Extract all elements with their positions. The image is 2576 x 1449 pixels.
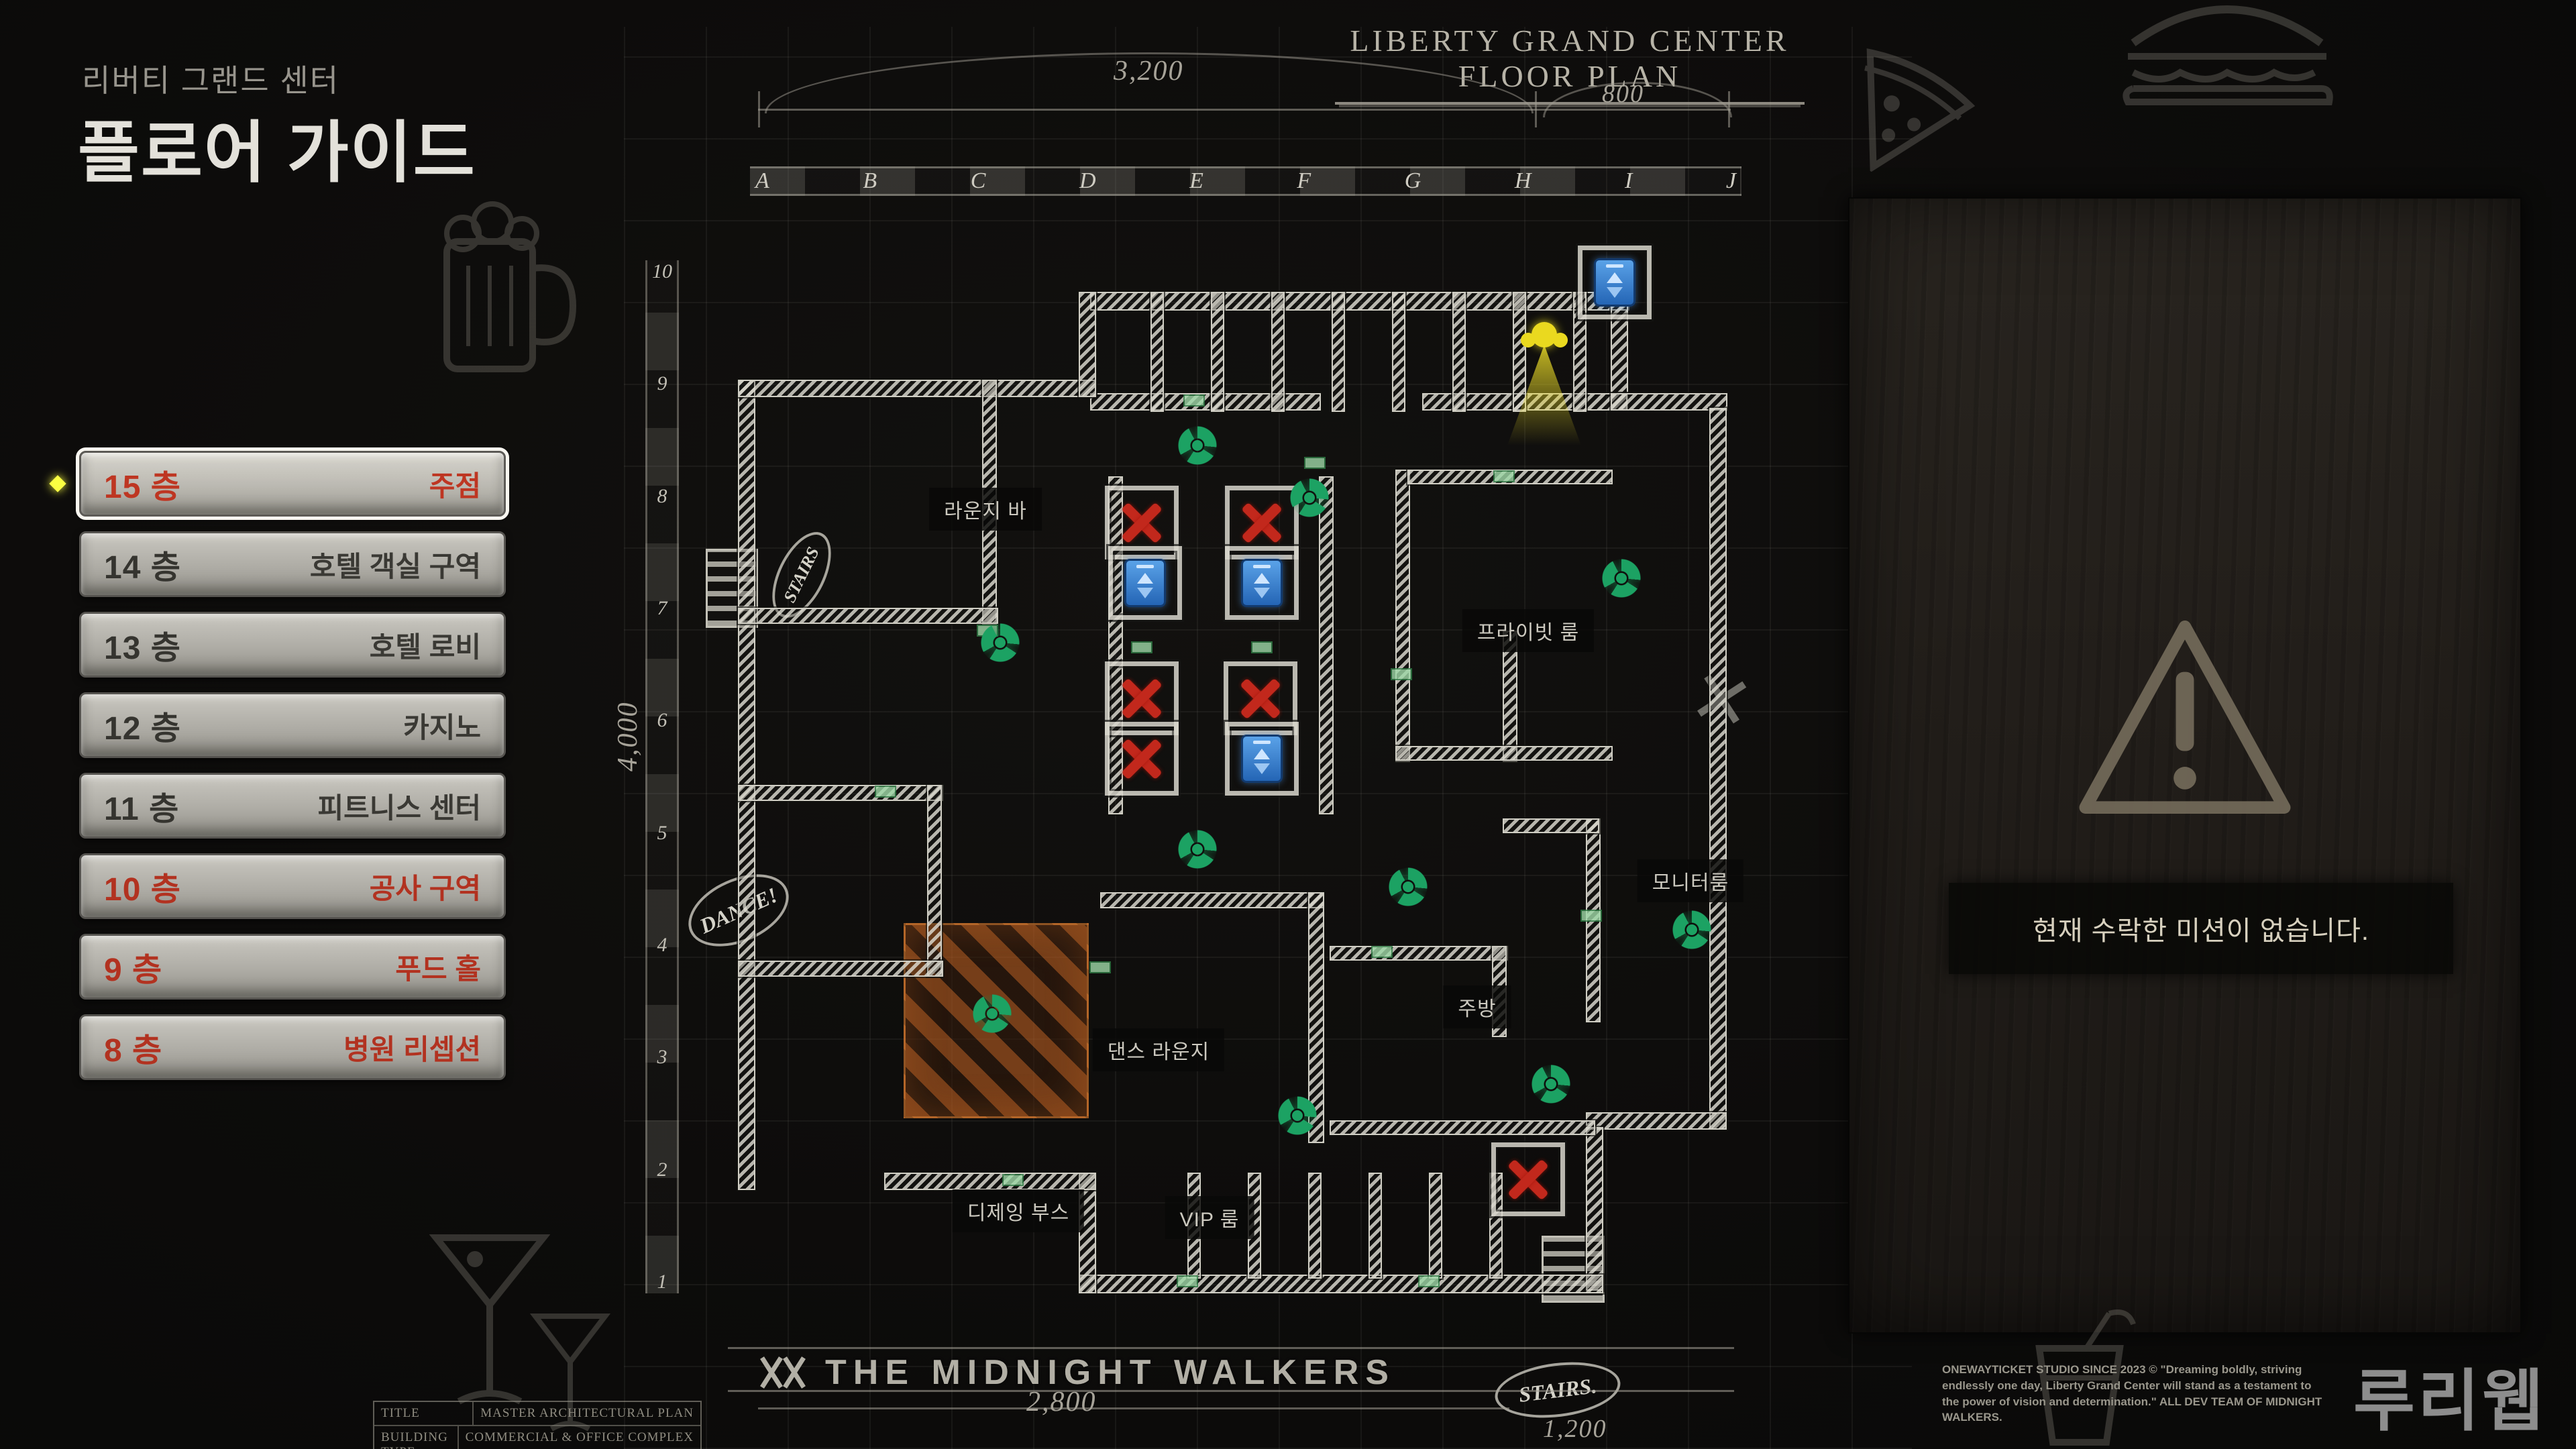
objective-dot <box>1304 492 1315 503</box>
mission-empty-banner: 현재 수락한 미션이 없습니다. <box>1949 883 2453 974</box>
elevator-icon[interactable] <box>1241 559 1283 607</box>
elevator-down-arrow-icon <box>1254 588 1270 598</box>
grid-column-label: A <box>755 168 769 194</box>
floor-label: 호텔 로비 <box>370 625 481 665</box>
grid-column-label: J <box>1726 168 1736 194</box>
wall-segment <box>1503 818 1599 833</box>
wall-segment <box>1332 292 1345 412</box>
wall-segment <box>1150 292 1164 412</box>
floor-number: 15 층 <box>104 460 181 507</box>
wall-segment <box>1090 393 1321 411</box>
studio-logo: THE MIDNIGHT WALKERS <box>758 1352 1395 1393</box>
player-marker-icon <box>1507 322 1581 445</box>
wall-segment <box>1452 292 1466 412</box>
wall-segment <box>738 608 998 624</box>
door-marker-icon <box>1493 470 1515 482</box>
room-label: 모니터룸 <box>1638 859 1743 902</box>
objective-point-icon <box>1672 910 1712 950</box>
site-watermark: 루리웹 <box>2353 1346 2546 1444</box>
objective-point-icon <box>1601 558 1642 598</box>
grid-row-label: 9 <box>657 372 667 395</box>
grid-column-ruler: ABCDEFGHIJ <box>750 166 1741 196</box>
wall-segment <box>738 961 943 977</box>
studio-logo-text: THE MIDNIGHT WALKERS <box>825 1352 1395 1393</box>
floor-selector-list: 15 층 주점 14 층 호텔 객실 구역 13 층 호텔 로비 12 층 카지… <box>79 451 506 1080</box>
wall-segment <box>1392 292 1405 412</box>
objective-point-icon <box>1289 478 1330 518</box>
dimension-top-value: 3,200 <box>1114 55 1184 87</box>
objective-point-icon <box>972 994 1012 1034</box>
blocked-elevator-x-icon <box>1119 736 1165 782</box>
door-marker-icon <box>1002 1174 1024 1186</box>
grid-row-label: 4 <box>657 934 667 957</box>
player-flashlight-cone <box>1507 345 1581 445</box>
dimension-line-bottom <box>758 1407 1509 1409</box>
objective-point-icon <box>1177 425 1218 466</box>
door-marker-icon <box>1177 1275 1198 1287</box>
grid-column-label: F <box>1297 168 1311 194</box>
objective-dot <box>1192 844 1203 855</box>
elevator-shaft <box>1225 546 1299 620</box>
wall-segment <box>1368 1173 1382 1279</box>
grid-row-label: 7 <box>657 597 667 620</box>
wall-segment <box>1395 470 1410 762</box>
grid-row-label: 5 <box>657 822 667 845</box>
door-marker-icon <box>1131 641 1152 653</box>
floor-label: 호텔 객실 구역 <box>310 544 481 585</box>
door-marker-icon <box>1304 457 1326 469</box>
wall-segment <box>1586 1112 1727 1130</box>
wall-segment <box>927 785 942 977</box>
floor-button[interactable]: 9 층 푸드 홀 <box>79 934 506 1000</box>
elevator-shaft <box>1105 722 1179 796</box>
floor-label: 주점 <box>429 464 481 504</box>
objective-dot <box>1192 440 1203 451</box>
game-screen: 리버티 그랜드 센터 플로어 가이드 LIBERTY GRAND CENTER … <box>0 0 2576 1449</box>
wall-segment <box>1709 408 1727 1130</box>
mission-panel: 현재 수락한 미션이 없습니다. <box>1848 197 2522 1334</box>
wall-segment <box>1395 746 1613 761</box>
floor-number: 8 층 <box>104 1024 162 1071</box>
grid-column-label: C <box>971 168 986 194</box>
objective-dot <box>1686 924 1697 935</box>
door-marker-icon <box>1251 641 1273 653</box>
objective-dot <box>1616 573 1627 584</box>
door-marker-icon <box>1183 394 1205 407</box>
wall-segment <box>1090 292 1629 311</box>
burger-doodle-icon <box>2093 0 2361 110</box>
blocked-elevator-x-icon <box>1239 500 1285 545</box>
elevator-icon[interactable] <box>1594 258 1635 307</box>
room-label: 주방 <box>1443 985 1511 1028</box>
blocked-elevator-x-icon <box>1505 1157 1551 1202</box>
floor-label: 병원 리셉션 <box>343 1027 481 1068</box>
elevator-down-arrow-icon <box>1137 588 1153 598</box>
dimension-left-value: 4,000 <box>612 702 644 772</box>
floor-number: 14 층 <box>104 541 181 588</box>
elevator-up-arrow-icon <box>1254 573 1270 584</box>
floor-button[interactable]: 11 층 피트니스 센터 <box>79 773 506 839</box>
objective-point-icon <box>1177 829 1218 869</box>
tropical-drink-doodle-icon <box>2012 1308 2147 1449</box>
player-body <box>1532 322 1557 347</box>
elevator-shaft <box>1108 546 1182 620</box>
objective-point-icon <box>1388 867 1428 907</box>
grid-column-label: D <box>1079 168 1096 194</box>
floor-button[interactable]: 14 층 호텔 객실 구역 <box>79 531 506 597</box>
objective-point-icon <box>1531 1064 1571 1104</box>
wall-segment <box>1079 292 1096 397</box>
wall-segment <box>1330 946 1508 961</box>
elevator-down-arrow-icon <box>1607 287 1623 298</box>
door-marker-icon <box>875 786 896 798</box>
floor-label: 카지노 <box>403 705 481 746</box>
wall-segment <box>1429 1173 1442 1279</box>
elevator-icon[interactable] <box>1124 559 1166 607</box>
door-marker-icon <box>1418 1275 1440 1287</box>
objective-point-icon <box>980 623 1020 663</box>
elevator-dash <box>1136 565 1154 568</box>
floor-button[interactable]: 10 층 공사 구역 <box>79 853 506 919</box>
grid-row-label: 8 <box>657 485 667 508</box>
door-marker-icon <box>1371 946 1393 958</box>
selection-cursor-icon <box>49 475 66 492</box>
wall-segment <box>1308 1173 1322 1279</box>
floor-number: 12 층 <box>104 702 181 749</box>
floor-button[interactable]: 13 층 호텔 로비 <box>79 612 506 678</box>
title-block-key: BUILDING TYPE <box>374 1426 459 1449</box>
wall-segment <box>1330 1120 1595 1135</box>
floor-label: 푸드 홀 <box>395 947 481 987</box>
floor-plan-map: DANCE! STAIRS STAIRS. ✕ 라운지 바프라이빗 룸모니터룸주… <box>724 255 1758 1449</box>
room-label: 프라이빗 룸 <box>1462 609 1594 652</box>
elevator-shaft <box>1578 246 1652 319</box>
elevator-up-arrow-icon <box>1254 749 1270 759</box>
wall-segment <box>1079 1275 1603 1293</box>
grid-column-label: I <box>1625 168 1632 194</box>
double-x-logo-icon <box>758 1354 808 1391</box>
floor-button[interactable]: 15 층 주점 <box>79 451 506 517</box>
objective-dot <box>1546 1079 1556 1089</box>
floor-label: 피트니스 센터 <box>317 786 481 826</box>
room-label: VIP 룸 <box>1165 1196 1254 1239</box>
blocked-elevator-x-icon <box>1119 500 1165 545</box>
wall-segment <box>1211 292 1224 412</box>
grid-column-label: H <box>1515 168 1532 194</box>
cocktail-doodle-icon <box>530 1308 610 1442</box>
elevator-down-arrow-icon <box>1254 763 1270 774</box>
page-title: 플로어 가이드 <box>78 98 476 195</box>
wall-segment <box>1271 292 1285 412</box>
floor-number: 10 층 <box>104 863 181 910</box>
elevator-icon[interactable] <box>1241 735 1283 783</box>
elevator-shaft <box>1225 722 1299 796</box>
door-marker-icon <box>1580 910 1602 922</box>
dimension-line-top <box>758 109 1731 111</box>
floor-button[interactable]: 12 층 카지노 <box>79 692 506 758</box>
grid-row-label: 2 <box>657 1159 667 1181</box>
elevator-shaft <box>1491 1142 1565 1216</box>
pizza-doodle-icon <box>1811 34 1986 203</box>
grid-row-label: 3 <box>657 1046 667 1069</box>
dimension-tick <box>1535 91 1537 127</box>
floor-number: 13 층 <box>104 621 181 668</box>
mission-empty-message: 현재 수락한 미션이 없습니다. <box>2033 909 2369 948</box>
room-label: 라운지 바 <box>929 488 1042 531</box>
door-marker-icon <box>1089 961 1111 973</box>
wall-segment <box>1100 892 1324 908</box>
objective-dot <box>987 1008 998 1019</box>
dimension-tick <box>1728 91 1730 127</box>
wall-segment <box>884 1173 1096 1190</box>
blocked-elevator-x-icon <box>1238 676 1283 721</box>
floor-number: 11 층 <box>104 782 179 829</box>
blocked-elevator-x-icon <box>1119 676 1165 721</box>
building-name: 리버티 그랜드 센터 <box>82 56 339 101</box>
dimension-bottom-right-value: 1,200 <box>1543 1414 1607 1444</box>
objective-dot <box>1292 1110 1303 1121</box>
footer-rule-top <box>728 1347 1734 1349</box>
beer-mug-doodle-icon <box>423 188 584 389</box>
floor-label: 공사 구역 <box>370 866 481 907</box>
grid-column-label: B <box>863 168 877 194</box>
grid-row-label: 10 <box>652 260 672 283</box>
warning-triangle-icon <box>2071 613 2299 828</box>
objective-point-icon <box>1277 1095 1318 1136</box>
elevator-dash <box>1606 264 1623 268</box>
floor-button[interactable]: 8 층 병원 리셉션 <box>79 1014 506 1080</box>
wall-segment <box>1586 1127 1603 1291</box>
objective-dot <box>995 637 1006 648</box>
grid-column-label: E <box>1189 168 1203 194</box>
wall-segment <box>738 785 943 801</box>
grid-row-label: 1 <box>657 1271 667 1293</box>
wall-segment <box>738 380 1096 397</box>
grid-row-label: 6 <box>657 709 667 732</box>
wall-segment <box>1319 476 1334 814</box>
grid-column-label: G <box>1405 168 1421 194</box>
elevator-up-arrow-icon <box>1137 573 1153 584</box>
dimension-tick <box>758 91 760 127</box>
floor-number: 9 층 <box>104 943 162 990</box>
room-label: 디제잉 부스 <box>953 1189 1084 1232</box>
grid-row-ruler: 10987654321 <box>645 260 679 1293</box>
objective-dot <box>1403 881 1413 892</box>
elevator-up-arrow-icon <box>1607 272 1623 283</box>
dimension-top-right-value: 800 <box>1602 79 1644 109</box>
elevator-dash <box>1253 565 1271 568</box>
elevator-dash <box>1253 741 1271 744</box>
door-marker-icon <box>1391 668 1412 680</box>
room-label: 댄스 라운지 <box>1093 1028 1224 1071</box>
